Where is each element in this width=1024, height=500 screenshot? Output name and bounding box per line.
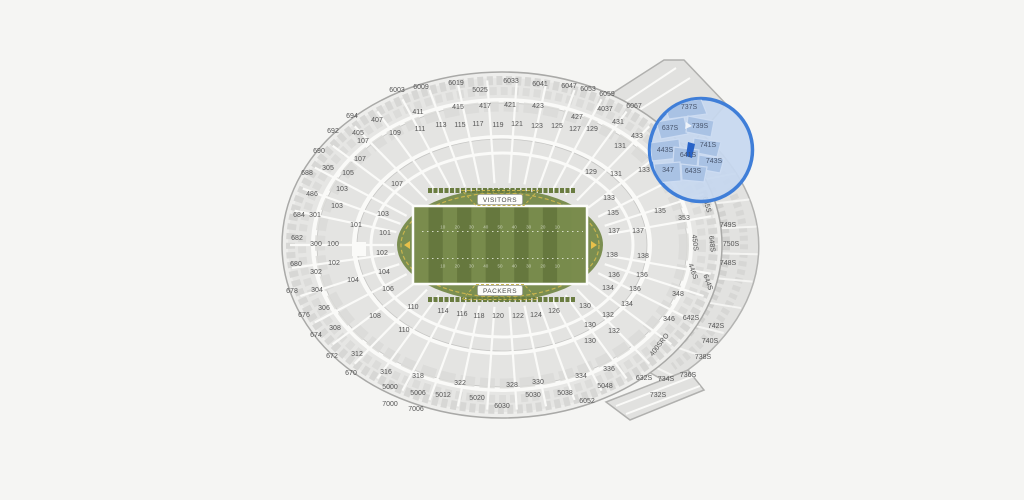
yard-number: 10: [440, 264, 446, 269]
section-label-423[interactable]: 423: [532, 103, 544, 110]
section-label-433[interactable]: 433: [631, 133, 643, 140]
section-label-136[interactable]: 136: [608, 272, 620, 279]
section-label-132[interactable]: 132: [608, 328, 620, 335]
section-label-6059[interactable]: 6059: [599, 91, 615, 98]
section-label-316[interactable]: 316: [380, 369, 392, 376]
section-label-750S[interactable]: 750S: [723, 241, 740, 248]
seatmap-stage: 101020203030404050504040303020201010 VIS…: [0, 0, 1024, 500]
section-label-104[interactable]: 104: [378, 269, 390, 276]
section-label-113[interactable]: 113: [435, 122, 446, 129]
section-label-680[interactable]: 680: [290, 261, 302, 268]
section-label-684[interactable]: 684: [293, 212, 305, 219]
section-label-353[interactable]: 353: [678, 215, 690, 222]
section-label-135[interactable]: 135: [607, 210, 619, 217]
section-label-6030[interactable]: 6030: [494, 403, 510, 410]
section-label-330[interactable]: 330: [532, 379, 544, 386]
section-label-5006[interactable]: 5006: [410, 390, 426, 397]
section-label-123[interactable]: 123: [531, 123, 543, 130]
yard-number: 20: [540, 264, 546, 269]
section-label-328[interactable]: 328: [506, 382, 518, 389]
section-label-688[interactable]: 688: [301, 170, 313, 177]
section-label-5012[interactable]: 5012: [435, 392, 451, 399]
section-label-676[interactable]: 676: [298, 312, 310, 319]
section-label-741S[interactable]: 741S: [700, 142, 717, 149]
section-label-116[interactable]: 116: [456, 311, 467, 318]
visitors-label: VISITORS: [483, 197, 517, 204]
section-label-133[interactable]: 133: [638, 167, 650, 174]
section-label-5048[interactable]: 5048: [597, 383, 613, 390]
section-label-486[interactable]: 486: [306, 191, 318, 198]
yard-number: 30: [469, 264, 475, 269]
section-label-694[interactable]: 694: [346, 113, 358, 120]
section-label-122[interactable]: 122: [512, 313, 524, 320]
section-label-101[interactable]: 101: [350, 222, 362, 229]
section-label-322[interactable]: 322: [454, 380, 466, 387]
section-label-138[interactable]: 138: [637, 253, 649, 260]
section-label-131[interactable]: 131: [614, 143, 626, 150]
section-label-5000[interactable]: 5000: [382, 384, 398, 391]
section-label-137[interactable]: 137: [632, 228, 644, 235]
section-label-6052[interactable]: 6052: [579, 398, 595, 405]
yard-number: 20: [540, 225, 546, 230]
section-label-306[interactable]: 306: [318, 305, 330, 312]
section-label-431[interactable]: 431: [612, 119, 624, 126]
section-label-742S[interactable]: 742S: [708, 323, 725, 330]
section-label-5038[interactable]: 5038: [557, 390, 573, 397]
section-label-6009[interactable]: 6009: [413, 84, 429, 91]
section-label-126[interactable]: 126: [548, 308, 560, 315]
section-label-739S[interactable]: 739S: [692, 123, 709, 130]
section-label-135[interactable]: 135: [654, 208, 666, 215]
section-label-127[interactable]: 127: [569, 126, 581, 133]
yard-number: 30: [526, 264, 532, 269]
yard-number: 50: [497, 264, 503, 269]
section-label-738S[interactable]: 738S: [695, 354, 712, 361]
zoom-bubble[interactable]: 737S637S739S443S741S641S743S347643S: [650, 99, 753, 202]
section-label-107[interactable]: 107: [391, 181, 403, 188]
section-label-427[interactable]: 427: [571, 114, 583, 121]
section-label-670[interactable]: 670: [345, 370, 357, 377]
section-label-346[interactable]: 346: [663, 316, 675, 323]
section-label-748S[interactable]: 748S: [720, 260, 737, 267]
yard-number: 40: [512, 264, 518, 269]
section-label-101[interactable]: 101: [379, 230, 391, 237]
section-label-102[interactable]: 102: [328, 260, 340, 267]
yard-number: 40: [483, 225, 489, 230]
section-label-632S[interactable]: 632S: [636, 375, 653, 382]
section-label-106[interactable]: 106: [382, 286, 394, 293]
section-label-300[interactable]: 300: [310, 241, 322, 248]
section-label-107[interactable]: 107: [357, 138, 369, 145]
section-label-100[interactable]: 100: [327, 241, 339, 248]
section-label-4037[interactable]: 4037: [597, 106, 613, 113]
section-label-732S[interactable]: 732S: [650, 392, 667, 399]
section-label-138[interactable]: 138: [606, 252, 618, 259]
section-label-117[interactable]: 117: [472, 121, 483, 128]
section-label-7000[interactable]: 7000: [382, 401, 398, 408]
section-label-6041[interactable]: 6041: [532, 81, 548, 88]
section-label-421[interactable]: 421: [504, 102, 516, 109]
section-label-136[interactable]: 136: [629, 286, 641, 293]
section-label-674[interactable]: 674: [310, 332, 322, 339]
section-label-104[interactable]: 104: [347, 277, 359, 284]
section-label-643S[interactable]: 643S: [685, 168, 702, 175]
yard-number: 30: [526, 225, 532, 230]
section-label-110[interactable]: 110: [407, 304, 418, 311]
section-label-6033[interactable]: 6033: [503, 78, 519, 85]
packers-label: PACKERS: [483, 288, 517, 295]
section-label-407[interactable]: 407: [371, 117, 383, 124]
section-label-130[interactable]: 130: [584, 338, 596, 345]
section-label-137[interactable]: 137: [608, 228, 620, 235]
section-label-103[interactable]: 103: [377, 211, 389, 218]
section-label-7006[interactable]: 7006: [408, 406, 424, 413]
section-label-103[interactable]: 103: [336, 186, 348, 193]
section-label-109[interactable]: 109: [389, 130, 401, 137]
yard-number: 10: [555, 264, 561, 269]
section-label-6003[interactable]: 6003: [389, 87, 405, 94]
section-label-115[interactable]: 115: [454, 122, 465, 129]
section-label-114[interactable]: 114: [437, 308, 448, 315]
section-label-749S[interactable]: 749S: [720, 222, 737, 229]
section-label-107[interactable]: 107: [354, 156, 366, 163]
yard-number: 10: [440, 225, 446, 230]
section-label-318[interactable]: 318: [412, 373, 424, 380]
section-label-121[interactable]: 121: [511, 121, 523, 128]
section-label-102[interactable]: 102: [376, 250, 388, 257]
yard-number: 20: [455, 225, 461, 230]
section-label-411[interactable]: 411: [412, 109, 423, 116]
section-label-125[interactable]: 125: [551, 123, 563, 130]
section-label-120[interactable]: 120: [492, 313, 504, 320]
section-label-6047[interactable]: 6047: [561, 83, 577, 90]
section-label-642S[interactable]: 642S: [683, 315, 700, 322]
section-label-734S[interactable]: 734S: [658, 376, 675, 383]
section-label-443S[interactable]: 443S: [657, 147, 674, 154]
section-label-405[interactable]: 405: [352, 130, 364, 137]
section-label-110[interactable]: 110: [398, 327, 409, 334]
section-label-129[interactable]: 129: [586, 126, 598, 133]
yard-number: 40: [512, 225, 518, 230]
section-label-692[interactable]: 692: [327, 128, 339, 135]
section-label-105[interactable]: 105: [342, 170, 354, 177]
section-label-6067[interactable]: 6067: [626, 103, 642, 110]
yard-number: 10: [555, 225, 561, 230]
section-label-130[interactable]: 130: [584, 322, 596, 329]
section-label-308[interactable]: 308: [329, 325, 341, 332]
section-label-136[interactable]: 136: [636, 272, 648, 279]
section-label-334[interactable]: 334: [575, 373, 587, 380]
section-label-124[interactable]: 124: [530, 312, 542, 319]
section-label-134[interactable]: 134: [621, 301, 633, 308]
yard-number: 30: [469, 225, 475, 230]
section-label-736S[interactable]: 736S: [680, 372, 697, 379]
section-label-134[interactable]: 134: [602, 285, 614, 292]
section-label-336[interactable]: 336: [603, 366, 615, 373]
section-label-5025[interactable]: 5025: [472, 87, 488, 94]
section-label-133[interactable]: 133: [603, 195, 615, 202]
yard-number: 40: [483, 264, 489, 269]
section-label-108[interactable]: 108: [369, 313, 381, 320]
section-label-119[interactable]: 119: [492, 122, 503, 129]
yard-number: 20: [455, 264, 461, 269]
section-label-5030[interactable]: 5030: [525, 392, 541, 399]
section-label-131[interactable]: 131: [610, 171, 622, 178]
football-field: 101020203030404050504040303020201010 VIS…: [397, 189, 603, 301]
section-label-641S[interactable]: 641S: [680, 152, 697, 159]
section-label-417[interactable]: 417: [479, 103, 491, 110]
stadium-seatmap[interactable]: 101020203030404050504040303020201010 VIS…: [0, 0, 1024, 500]
section-label-678[interactable]: 678: [286, 288, 298, 295]
section-label-111[interactable]: 111: [415, 126, 426, 133]
section-label-415[interactable]: 415: [452, 104, 464, 111]
section-label-129[interactable]: 129: [585, 169, 597, 176]
section-label-743S[interactable]: 743S: [706, 158, 723, 165]
section-label-6019[interactable]: 6019: [448, 80, 464, 87]
section-label-132[interactable]: 132: [602, 312, 614, 319]
section-label-5020[interactable]: 5020: [469, 395, 485, 402]
section-label-305[interactable]: 305: [322, 165, 334, 172]
section-label-301[interactable]: 301: [309, 212, 321, 219]
west-tunnel: [352, 242, 366, 256]
section-label-130[interactable]: 130: [579, 303, 591, 310]
section-label-690[interactable]: 690: [313, 148, 325, 155]
section-label-302[interactable]: 302: [310, 269, 322, 276]
section-label-737S[interactable]: 737S: [681, 104, 698, 111]
yard-number: 50: [497, 225, 503, 230]
section-label-637S[interactable]: 637S: [662, 125, 679, 132]
section-label-118[interactable]: 118: [473, 313, 484, 320]
section-label-348[interactable]: 348: [672, 291, 684, 298]
section-label-304[interactable]: 304: [311, 287, 323, 294]
section-label-672[interactable]: 672: [326, 353, 338, 360]
section-label-6053[interactable]: 6053: [580, 86, 596, 93]
section-label-682[interactable]: 682: [291, 235, 303, 242]
section-label-103[interactable]: 103: [331, 203, 343, 210]
section-label-312[interactable]: 312: [351, 351, 363, 358]
section-label-347[interactable]: 347: [662, 167, 674, 174]
section-label-740S[interactable]: 740S: [702, 338, 719, 345]
